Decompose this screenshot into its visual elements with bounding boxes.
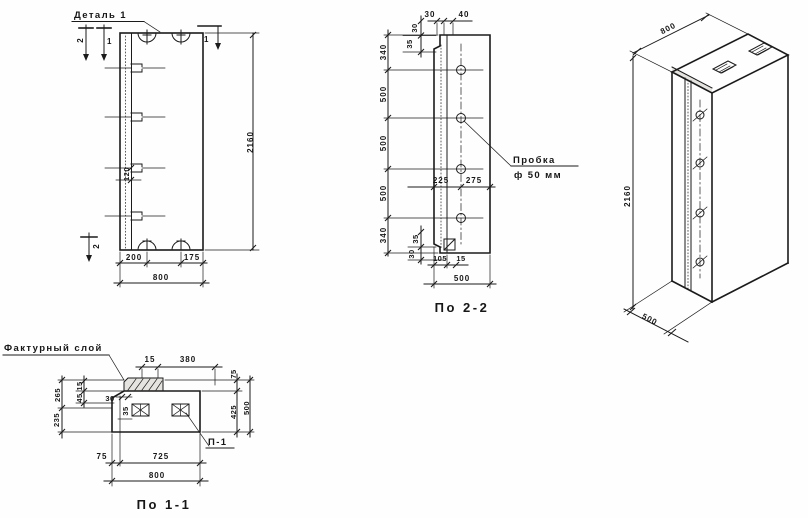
sec22-left-chain: 340 500 500 500 340 bbox=[379, 30, 438, 256]
sec22-dim-v35-bot: 35 bbox=[411, 234, 420, 243]
sec22-chain-500a: 500 bbox=[379, 86, 388, 102]
sec11-dim-15-top: 15 bbox=[145, 355, 156, 364]
plug-label-line2: ф 50 мм bbox=[514, 170, 562, 181]
sec22-chain-340a: 340 bbox=[379, 44, 388, 60]
lifting-loop-top-right bbox=[172, 30, 190, 44]
sec11-dim-75-right: 75 bbox=[229, 369, 238, 378]
sec11-left-small-dims: 15 45 bbox=[75, 376, 124, 407]
front-dim-175: 175 bbox=[184, 253, 200, 262]
sec22-chain-500c: 500 bbox=[379, 185, 388, 201]
sec11-dim-235: 235 bbox=[52, 413, 61, 427]
section-1-1: Фактурный слой bbox=[3, 343, 254, 512]
front-dim-120: 120 bbox=[122, 167, 131, 181]
sec22-dim-v30-top: 30 bbox=[410, 23, 419, 32]
sec22-dim-40-top: 40 bbox=[459, 10, 470, 19]
sec11-dim-425: 425 bbox=[229, 405, 238, 419]
blueprint-sheet: 120 Деталь 1 2 1 1 bbox=[0, 0, 808, 518]
front-dim-200: 200 bbox=[126, 253, 142, 262]
section-flag-2-bottom: 2 bbox=[81, 233, 101, 262]
iso-dim-500: 500 bbox=[624, 302, 712, 342]
panel-drawing: 120 Деталь 1 2 1 1 bbox=[0, 0, 808, 518]
iso-loop-recess-1 bbox=[713, 61, 736, 73]
front-dim-2160: 2160 bbox=[246, 131, 255, 153]
sec22-dim-v30-bot: 30 bbox=[407, 249, 416, 258]
iso-facing-strip bbox=[685, 78, 691, 291]
iso-plug-holes bbox=[693, 100, 707, 278]
iso-dim-2160: 2160 bbox=[623, 55, 672, 312]
sec11-step-dims: 30 35 bbox=[105, 394, 132, 419]
sec22-dim-15: 15 bbox=[456, 254, 465, 263]
sec22-chain-340b: 340 bbox=[379, 227, 388, 243]
iso-view: 800 2160 500 bbox=[623, 13, 788, 342]
sec11-dim-30: 30 bbox=[105, 394, 114, 403]
front-height-dim: 2160 bbox=[205, 32, 259, 251]
sec22-dim-v35-top: 35 bbox=[405, 39, 414, 48]
sec11-dim-15-left: 15 bbox=[75, 381, 84, 390]
iso-top-face bbox=[672, 34, 788, 93]
flag-2-label: 2 bbox=[76, 37, 85, 42]
sec22-dim-105: 105 bbox=[433, 254, 447, 263]
sec11-dim-725: 725 bbox=[153, 452, 169, 461]
sec11-dim-265: 265 bbox=[53, 388, 62, 402]
section-outline bbox=[434, 35, 490, 253]
sec22-topleft-dims: 30 35 bbox=[403, 16, 436, 57]
sec11-dim-380: 380 bbox=[180, 355, 196, 364]
sec11-right-dims: 75 425 500 bbox=[165, 369, 254, 437]
panel-outline bbox=[120, 33, 203, 250]
front-view: 120 Деталь 1 2 1 1 bbox=[72, 10, 259, 287]
sec11-dim-75-bot: 75 bbox=[97, 452, 108, 461]
section-flag-1-top: 1 bbox=[97, 25, 112, 61]
p1-callout: П-1 bbox=[186, 413, 234, 448]
section-flag-1-right: 1 bbox=[198, 26, 221, 50]
lifting-loop-bottom-left bbox=[138, 239, 156, 250]
sec22-top-dims: 30 40 bbox=[425, 10, 472, 34]
sec22-dim-275: 275 bbox=[466, 176, 482, 185]
sec22-dim-225: 225 bbox=[433, 176, 449, 185]
sec22-mid-dims: 225 275 bbox=[408, 176, 495, 190]
sec11-title: По 1-1 bbox=[137, 497, 192, 512]
plug-label-line1: Пробка bbox=[513, 155, 556, 166]
sec22-dim-500: 500 bbox=[454, 274, 470, 283]
iso-loop-recess-2 bbox=[749, 43, 772, 55]
sec11-bottom-dims: 75 725 800 bbox=[97, 434, 208, 486]
sec22-title: По 2-2 bbox=[435, 300, 490, 315]
sec11-dim-500-right: 500 bbox=[242, 401, 251, 415]
p1-label: П-1 bbox=[208, 437, 227, 448]
sec11-left-dims: 265 235 bbox=[52, 376, 124, 438]
iso-dim-800-text: 800 bbox=[659, 21, 678, 36]
plug-sockets bbox=[105, 64, 165, 220]
facing-callout: Фактурный слой bbox=[3, 343, 124, 380]
iso-dim-500-text: 500 bbox=[640, 312, 659, 327]
flag-1-label: 1 bbox=[107, 37, 112, 46]
plug-callout: Пробка ф 50 мм bbox=[464, 121, 578, 181]
section-flag-2-top: 2 bbox=[76, 25, 93, 61]
sec11-dim-45-left: 45 bbox=[75, 393, 84, 402]
iso-dim-2160-text: 2160 bbox=[623, 185, 632, 207]
sec22-chain-500b: 500 bbox=[379, 135, 388, 151]
lifting-loop-top-left bbox=[138, 30, 156, 44]
flag-2-bottom-label: 2 bbox=[92, 243, 101, 248]
front-bottom-dims: 200 175 800 bbox=[114, 252, 209, 287]
facing-strip-section bbox=[124, 378, 163, 391]
sec22-dim-30-top: 30 bbox=[425, 10, 436, 19]
sec11-dim-35: 35 bbox=[121, 406, 130, 415]
flag-1-right-label: 1 bbox=[204, 35, 209, 44]
sec11-plug-box-1 bbox=[132, 404, 149, 416]
facing-label: Фактурный слой bbox=[4, 343, 103, 354]
sec11-dim-800: 800 bbox=[149, 471, 165, 480]
section-2-2: 30 40 30 35 340 500 500 bbox=[379, 10, 578, 315]
lifting-loop-bottom-right bbox=[172, 239, 190, 250]
detail-label: Деталь 1 bbox=[74, 10, 127, 21]
front-dim-800: 800 bbox=[153, 273, 169, 282]
